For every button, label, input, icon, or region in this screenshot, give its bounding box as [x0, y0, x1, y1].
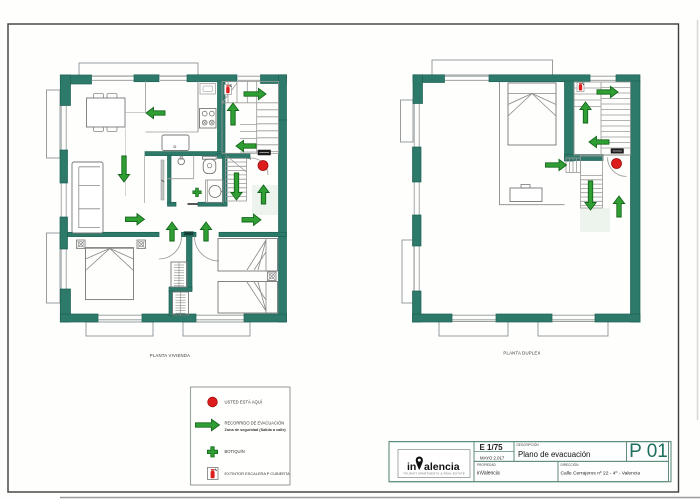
svg-text:Plano de evacuación: Plano de evacuación: [518, 450, 590, 459]
svg-text:MAYO 2.017: MAYO 2.017: [480, 455, 505, 460]
svg-text:TOURIST APARTMENTS & REAL ESTA: TOURIST APARTMENTS & REAL ESTATE: [403, 472, 465, 476]
svg-text:USTED ESTÁ AQUÍ: USTED ESTÁ AQUÍ: [225, 400, 263, 405]
svg-text:inValencia: inValencia: [477, 470, 500, 476]
svg-text:P 01: P 01: [629, 441, 668, 462]
svg-text:DIRECCIÓN: DIRECCIÓN: [561, 462, 580, 467]
svg-text:PLANTA VIVIENDA: PLANTA VIVIENDA: [150, 353, 190, 358]
svg-text:PROPIEDAD: PROPIEDAD: [477, 463, 496, 467]
svg-text:Zona de seguridad (Salida a ca: Zona de seguridad (Salida a calle): [225, 428, 287, 432]
svg-text:EXTINTOR ESCALERA P CUBIERTA: EXTINTOR ESCALERA P CUBIERTA: [225, 471, 291, 476]
svg-text:DESCRIPCIÓN: DESCRIPCIÓN: [517, 442, 540, 447]
svg-text:PLANTA DUPLEX: PLANTA DUPLEX: [503, 351, 540, 356]
svg-text:RECORRIDO DE EVACUACIÓN: RECORRIDO DE EVACUACIÓN: [225, 420, 285, 425]
svg-text:E 1/75: E 1/75: [480, 443, 504, 452]
svg-text:Calle Cerrajeros nº 22 - 4º -: Calle Cerrajeros nº 22 - 4º - Valencia: [561, 471, 641, 477]
svg-text:BOTIQUÍN: BOTIQUÍN: [225, 449, 245, 454]
